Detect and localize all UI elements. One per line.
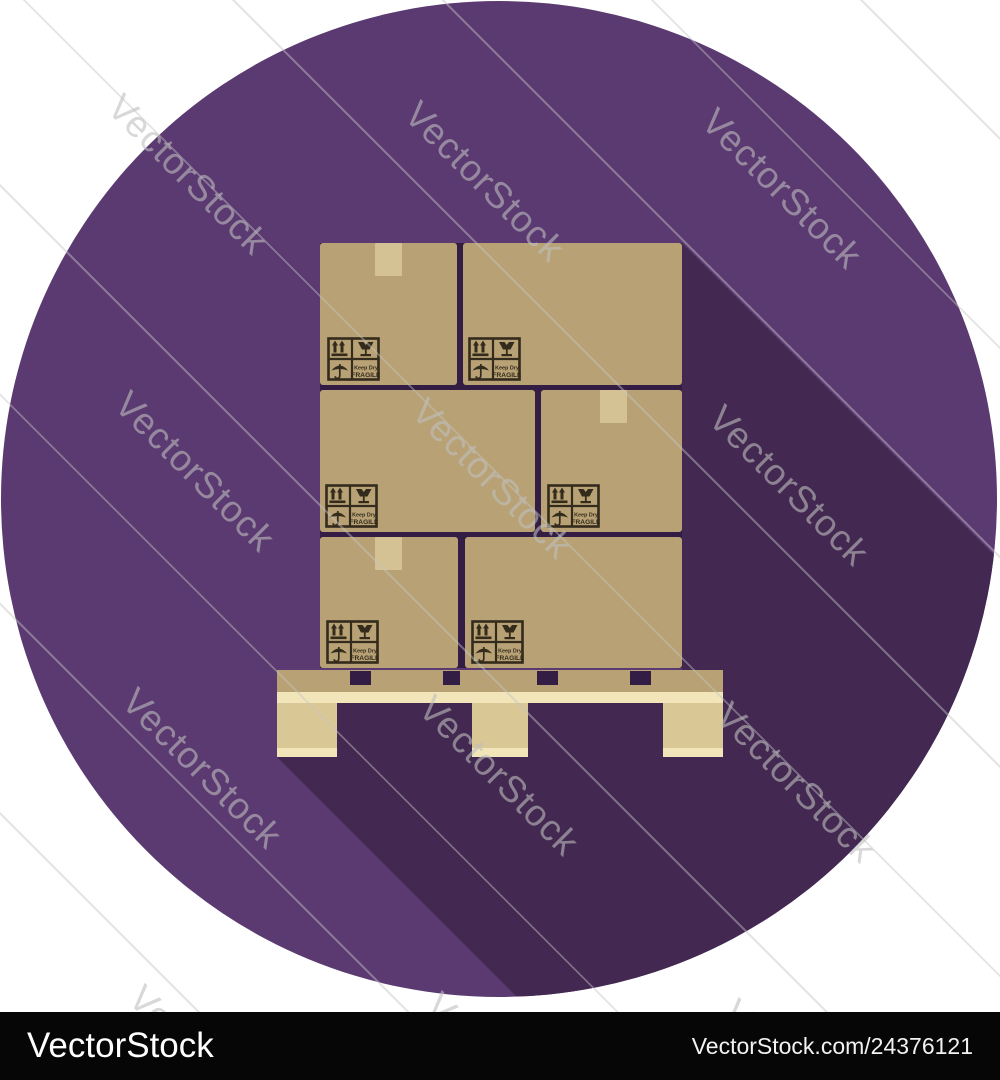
keep-dry-umbrella-icon xyxy=(331,647,348,661)
shipping-label: Keep Dry FRAGILE xyxy=(325,484,378,528)
pallet-board-gap xyxy=(630,671,651,685)
this-way-up-icon xyxy=(552,488,568,504)
label-keep-dry-text: Keep Dry xyxy=(495,366,519,372)
vectorstock-image-url: VectorStock.com/24376121 xyxy=(692,1033,973,1060)
this-way-up-icon xyxy=(330,488,346,504)
fragile-glass-icon xyxy=(356,489,372,503)
icon-circle-background: Keep Dry FRAGILE xyxy=(1,1,997,997)
fragile-glass-icon xyxy=(357,625,373,639)
this-way-up-icon xyxy=(332,341,348,357)
pallet-leg xyxy=(472,703,528,748)
pallet-foot-board xyxy=(663,748,723,757)
label-fragile-text: FRAGILE xyxy=(352,372,380,379)
pallet-deck-board xyxy=(277,670,723,692)
stock-image-preview: Keep Dry FRAGILE xyxy=(0,0,1000,1080)
box-tape xyxy=(375,537,402,570)
label-keep-dry-text: Keep Dry xyxy=(574,513,598,519)
keep-dry-umbrella-icon xyxy=(330,511,347,525)
pallet-board-gap xyxy=(350,671,371,685)
this-way-up-icon xyxy=(331,624,347,640)
icon-canvas: Keep Dry FRAGILE xyxy=(1,1,997,997)
box-tape xyxy=(600,390,627,423)
shipping-label: Keep Dry FRAGILE xyxy=(547,484,600,528)
label-keep-dry-text: Keep Dry xyxy=(353,649,377,655)
pallet-foot-board xyxy=(472,748,528,757)
keep-dry-umbrella-icon xyxy=(552,511,569,525)
pallet-foot-board xyxy=(277,748,337,757)
pallet-board-gap xyxy=(443,671,460,685)
shipping-label: Keep Dry FRAGILE xyxy=(327,337,380,381)
pallet-stringer-board xyxy=(277,692,723,703)
this-way-up-icon xyxy=(476,624,492,640)
shipping-label: Keep Dry FRAGILE xyxy=(471,620,524,664)
label-fragile-text: FRAGILE xyxy=(351,655,379,662)
keep-dry-umbrella-icon xyxy=(476,647,493,661)
fragile-glass-icon xyxy=(499,342,515,356)
label-fragile-text: FRAGILE xyxy=(350,519,378,526)
label-keep-dry-text: Keep Dry xyxy=(354,366,378,372)
pallet-leg xyxy=(277,703,337,748)
keep-dry-umbrella-icon xyxy=(332,364,349,378)
shipping-label: Keep Dry FRAGILE xyxy=(468,337,521,381)
vectorstock-logo: VectorStock xyxy=(27,1026,214,1066)
label-fragile-text: FRAGILE xyxy=(493,372,521,379)
label-keep-dry-text: Keep Dry xyxy=(498,649,522,655)
fragile-glass-icon xyxy=(358,342,374,356)
box-tape xyxy=(375,243,402,276)
shipping-label: Keep Dry FRAGILE xyxy=(326,620,379,664)
this-way-up-icon xyxy=(473,341,489,357)
fragile-glass-icon xyxy=(502,625,518,639)
pallet-board-gap xyxy=(537,671,558,685)
label-keep-dry-text: Keep Dry xyxy=(352,513,376,519)
fragile-glass-icon xyxy=(578,489,594,503)
pallet-leg xyxy=(663,703,723,748)
label-fragile-text: FRAGILE xyxy=(496,655,524,662)
footer-bar: VectorStock VectorStock.com/24376121 xyxy=(0,1012,1000,1080)
label-fragile-text: FRAGILE xyxy=(572,519,600,526)
keep-dry-umbrella-icon xyxy=(473,364,490,378)
